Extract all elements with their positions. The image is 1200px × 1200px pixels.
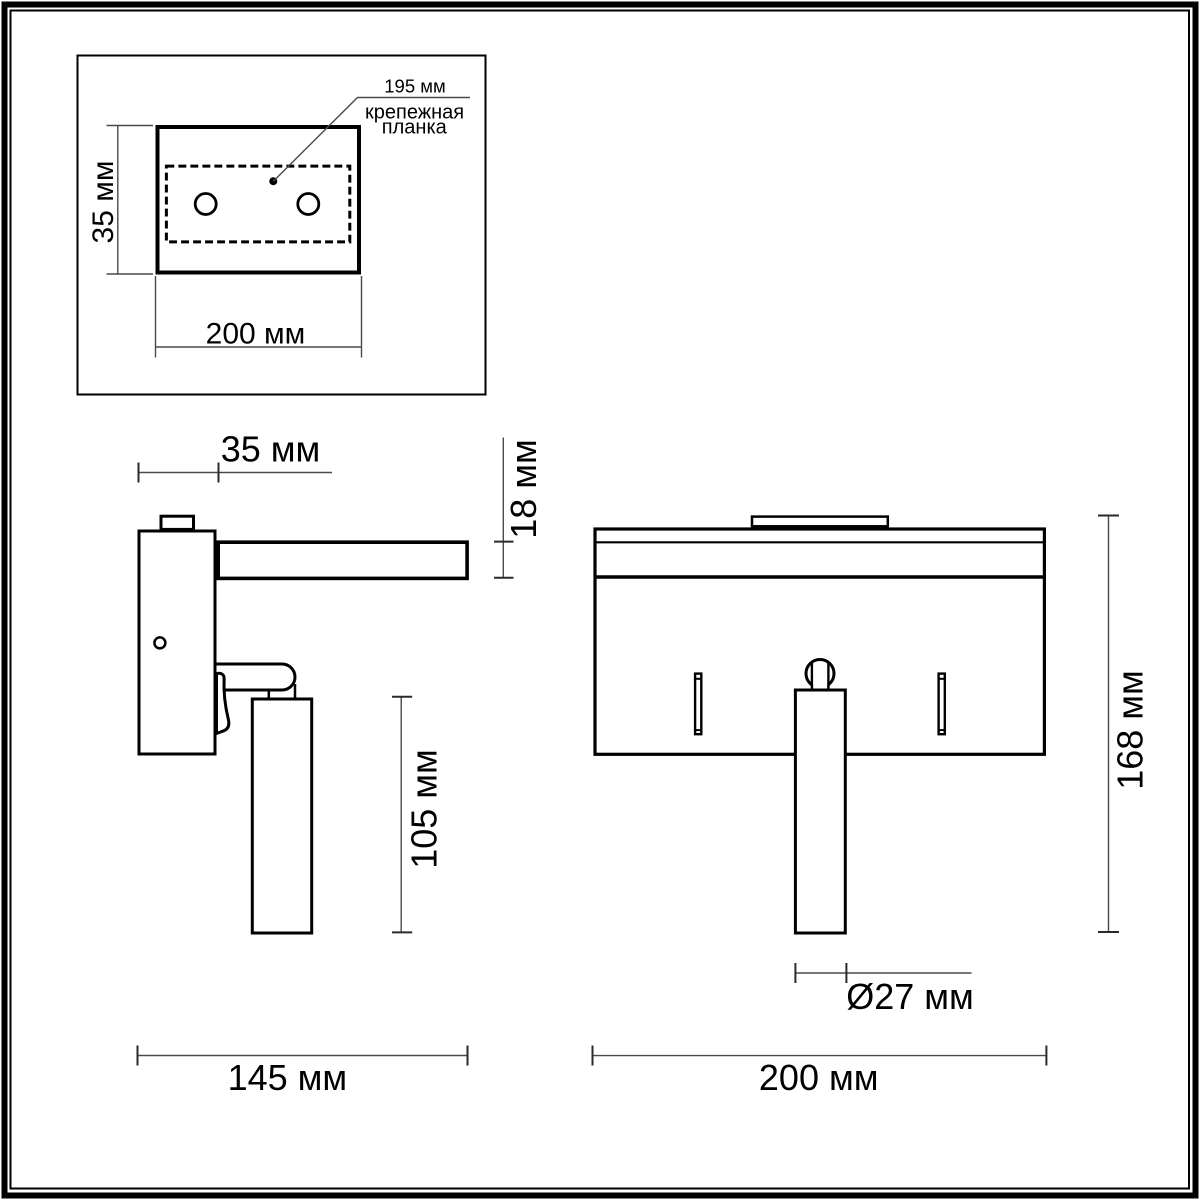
svg-text:Ø27 мм: Ø27 мм: [846, 976, 974, 1017]
svg-text:105 мм: 105 мм: [403, 749, 444, 869]
svg-text:195 мм: 195 мм: [384, 75, 445, 96]
svg-text:35 мм: 35 мм: [87, 161, 120, 244]
svg-text:200 мм: 200 мм: [759, 1057, 879, 1098]
svg-text:200 мм: 200 мм: [206, 317, 306, 350]
svg-text:145 мм: 145 мм: [228, 1057, 348, 1098]
svg-text:планка: планка: [382, 117, 448, 139]
svg-text:18 мм: 18 мм: [503, 439, 544, 539]
svg-text:168 мм: 168 мм: [1110, 670, 1151, 790]
svg-text:35 мм: 35 мм: [221, 429, 321, 470]
